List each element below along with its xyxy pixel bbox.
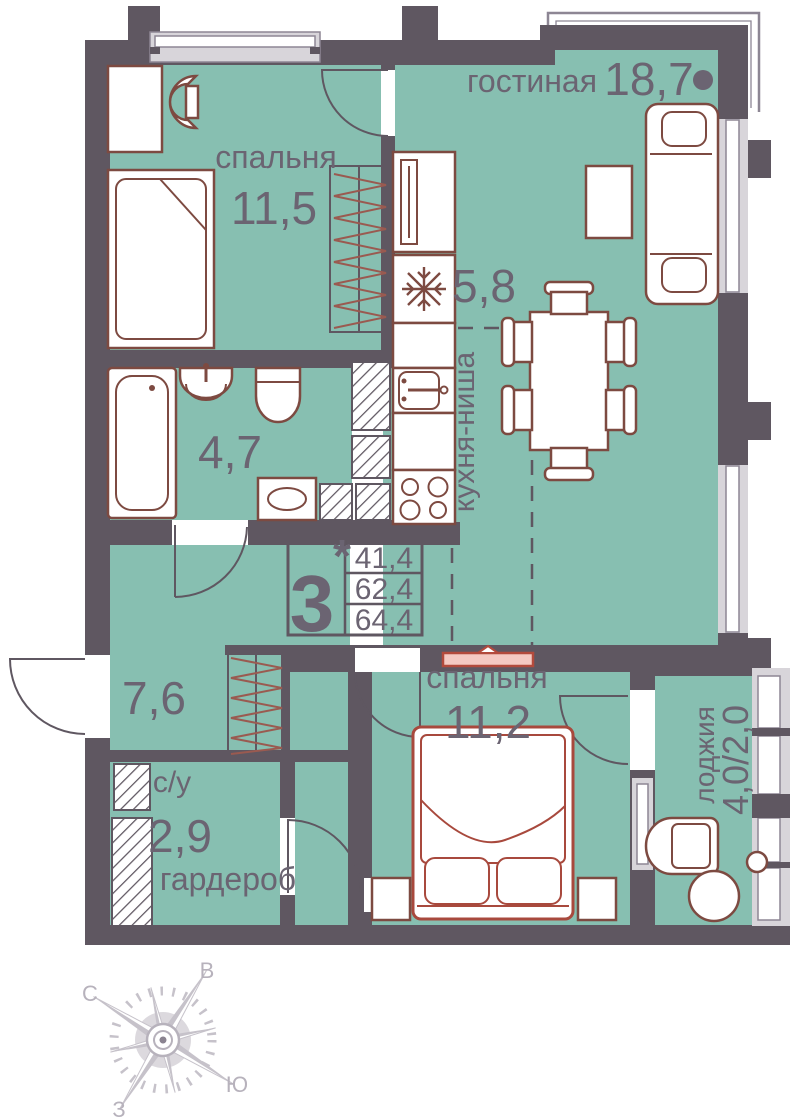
chair-back [624, 386, 636, 434]
rooms-count: 3 [290, 559, 335, 648]
compass: В С Ю З [50, 927, 276, 1120]
wardrobe-label: гардероб [160, 861, 296, 897]
bedroom-top-label: спальня [215, 139, 336, 175]
compass-west-label: З [112, 1097, 125, 1120]
compass-east-label: В [200, 958, 215, 983]
living-room-label: гостиная [467, 63, 597, 99]
chair-back [502, 318, 514, 366]
counter-2 [393, 413, 455, 470]
living-area-value: 41,4 [355, 542, 413, 575]
stool [747, 852, 767, 872]
kitchen-label: кухня-ниша [448, 352, 481, 513]
total-area-value: 64,4 [355, 604, 413, 637]
desk [108, 66, 162, 152]
nightstand [372, 878, 410, 920]
loggia-area: 4,0/2,0 [715, 705, 756, 815]
kitchen-area: 5,8 [452, 260, 516, 312]
bedroom-top-area: 11,5 [231, 182, 317, 234]
hallway-area: 7,6 [122, 672, 186, 724]
nightstand [578, 878, 616, 920]
chair-seat [551, 292, 587, 314]
su-label: с/у [153, 766, 191, 799]
usable-area-value: 62,4 [355, 573, 413, 606]
entry-door-arc [10, 659, 85, 734]
bedroom-bottom-area: 11,2 [445, 696, 531, 748]
sofa-pillow [662, 112, 706, 146]
bathroom-area: 4,7 [198, 426, 262, 478]
rooms-count-star: * [333, 530, 351, 582]
chair-seat [551, 448, 587, 470]
washing-machine [258, 478, 316, 520]
pillow [425, 858, 489, 904]
chair-back [545, 468, 593, 480]
round-table [689, 871, 739, 921]
living-room-area: 18,7 [604, 53, 694, 105]
chair-seat [186, 86, 198, 118]
pillow [497, 858, 561, 904]
furniture-kitchen [393, 152, 455, 524]
floor-plan-page: гостиная 18,7 спальня 11,5 5,8 кухня-ниш… [0, 0, 800, 1120]
sofa-pillow [662, 258, 706, 292]
su-area: 2,9 [148, 810, 212, 862]
dining-table [530, 312, 608, 450]
snowflake-icon [402, 267, 446, 311]
bedroom-bottom-label: спальня [426, 659, 547, 695]
compass-north-label: С [82, 981, 98, 1006]
compass-south-label: Ю [226, 1072, 248, 1097]
floor-plan-drawing: гостиная 18,7 спальня 11,5 5,8 кухня-ниш… [0, 0, 800, 1120]
chair-back [502, 386, 514, 434]
toilet [256, 368, 300, 422]
coffee-table [586, 166, 632, 238]
living-room-dot [693, 70, 713, 90]
chair-back [624, 318, 636, 366]
counter [393, 323, 455, 368]
